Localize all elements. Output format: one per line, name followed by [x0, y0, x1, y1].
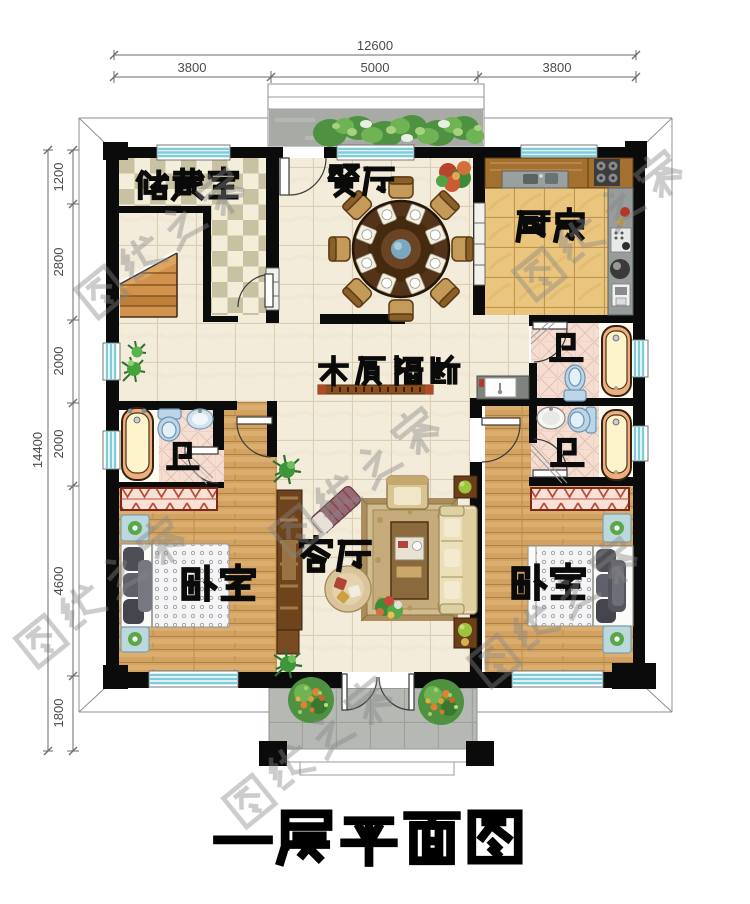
- svg-text:3800: 3800: [543, 60, 572, 75]
- svg-text:3800: 3800: [178, 60, 207, 75]
- svg-text:2000: 2000: [51, 347, 66, 376]
- svg-text:2000: 2000: [51, 430, 66, 459]
- svg-text:14400: 14400: [30, 432, 45, 468]
- svg-text:2800: 2800: [51, 248, 66, 277]
- svg-text:4600: 4600: [51, 567, 66, 596]
- svg-text:5000: 5000: [361, 60, 390, 75]
- svg-text:1200: 1200: [51, 163, 66, 192]
- svg-text:1800: 1800: [51, 699, 66, 728]
- svg-text:12600: 12600: [357, 38, 393, 53]
